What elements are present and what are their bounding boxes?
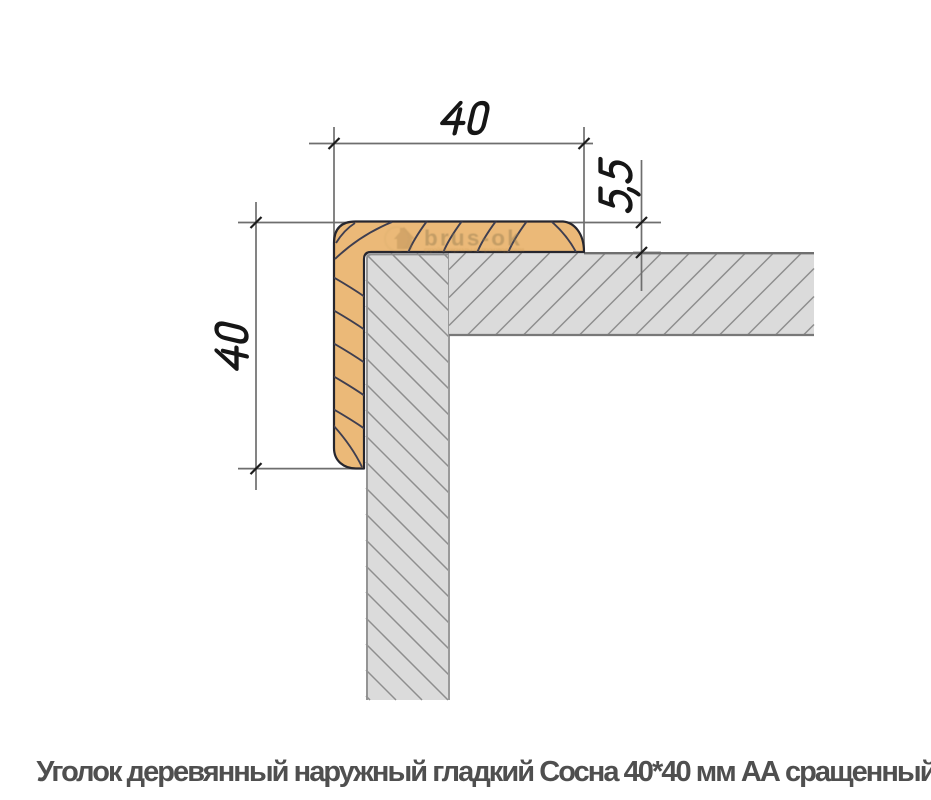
svg-text:стройматериалы от производител: стройматериалы от производителя <box>424 246 525 254</box>
svg-text:Уголок деревянный наружный гла: Уголок деревянный наружный гладкий Сосна… <box>36 756 931 788</box>
